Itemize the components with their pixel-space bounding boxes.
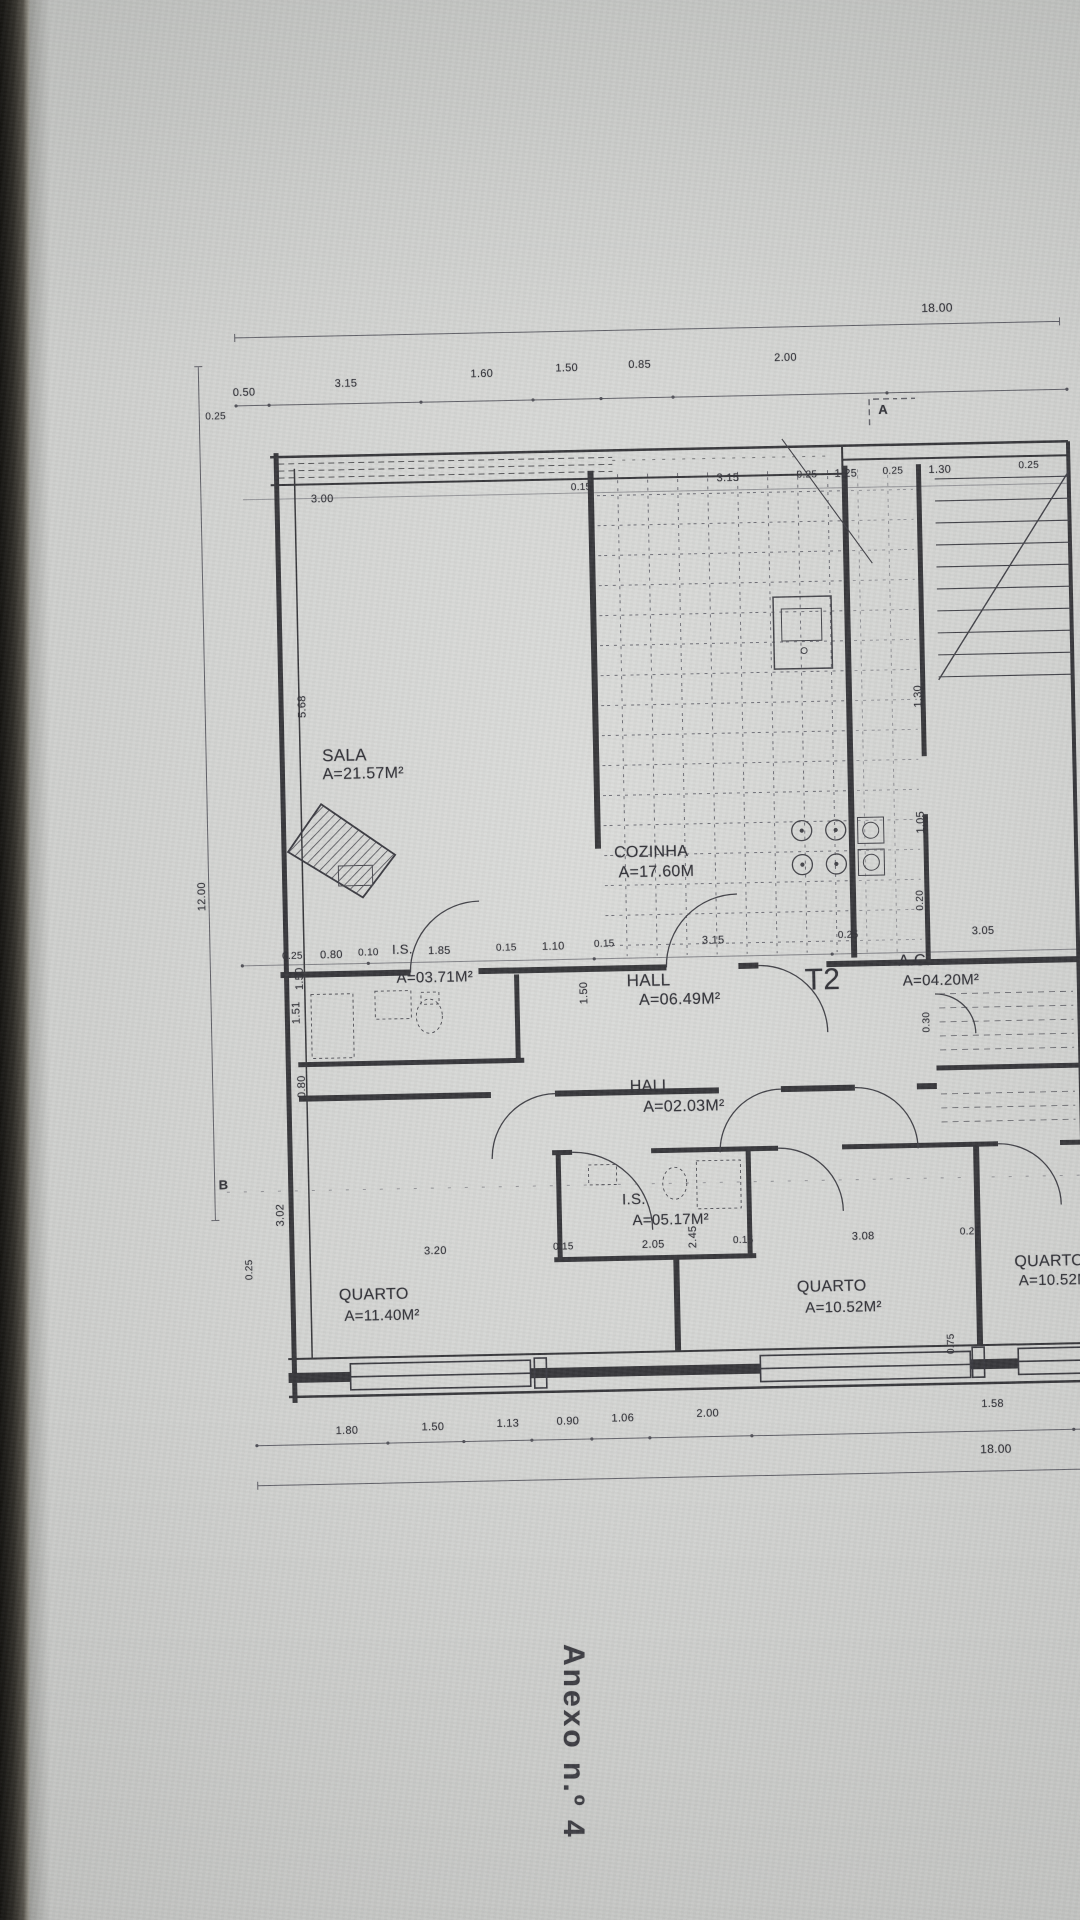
dim-bot-4: 0.90 — [556, 1416, 579, 1428]
dim-bot-5: 1.06 — [611, 1413, 634, 1425]
room-is1-name: I.S. — [392, 942, 413, 956]
room-is2-name: I.S. — [622, 1192, 646, 1208]
section-marker-b: B — [219, 1178, 229, 1192]
dim-bot-1: 1.80 — [336, 1426, 359, 1438]
room-quarto2-area: A=10.52M² — [805, 1299, 882, 1316]
dim-left-025: 0.25 — [245, 1259, 256, 1280]
dim-low-2: 0.15 — [553, 1242, 574, 1253]
dim-left-151: 1.51 — [291, 1001, 303, 1024]
dim-top-2: 3.15 — [335, 378, 358, 390]
photo-backing-surface — [0, 0, 30, 1920]
room-hall1-area: A=06.49M² — [639, 991, 721, 1009]
dim-upper-5: 1.25 — [834, 468, 857, 480]
room-quarto3-name: QUARTO — [1014, 1253, 1080, 1271]
room-sala-area: A=21.57M² — [322, 766, 404, 784]
dim-bot-3: 1.13 — [496, 1418, 519, 1430]
dim-right-075: 0.75 — [947, 1333, 958, 1354]
dim-bot-6: 2.00 — [696, 1408, 719, 1420]
dim-v-245: 2.45 — [688, 1225, 700, 1248]
photographed-floor-plan: { "annex": { "text": "Anexo n.º 4" }, "c… — [0, 0, 1080, 1920]
dim-right-020: 0.20 — [916, 890, 927, 911]
dim-bot-total: 18.00 — [980, 1443, 1012, 1456]
floor-plan: 18.000.503.151.601.500.852.00A0.253.000.… — [179, 291, 1080, 1524]
room-hall2-area: A=02.03M² — [643, 1098, 725, 1116]
dim-upper-4: 0.25 — [796, 470, 817, 481]
unit-type-t2: T2 — [804, 964, 840, 996]
section-marker-a: A — [878, 403, 888, 417]
room-cozinha-name: COZINHA — [614, 844, 688, 862]
dim-mid-8: 3.15 — [702, 935, 725, 947]
annex-title: Anexo n.º 4 — [556, 1644, 590, 1840]
dim-upper-1: 3.00 — [311, 494, 334, 506]
ac-floor-hatch — [939, 991, 1076, 1122]
dim-mid-2: 0.80 — [320, 950, 343, 962]
room-ac-name: A.C. — [898, 953, 931, 970]
dim-mid-6: 1.10 — [542, 941, 565, 953]
dim-right-130: 1.30 — [913, 685, 925, 708]
dim-top-4: 1.50 — [555, 363, 578, 375]
dim-upper-3: 3.15 — [717, 473, 740, 485]
room-is1-area: A=03.71M² — [396, 969, 473, 986]
dim-right-105: 1.05 — [916, 811, 928, 834]
dim-low-5: 3.08 — [852, 1231, 875, 1243]
dim-left-1200: 12.00 — [197, 882, 209, 911]
paper-edge-shadow — [28, 0, 54, 1920]
dim-v-030: 0.30 — [922, 1012, 933, 1033]
dim-low-6: 0.25 — [960, 1227, 981, 1238]
dim-mid-9: 0.25 — [838, 931, 859, 942]
dim-v-150: 1.50 — [579, 982, 591, 1005]
dim-top-6: 2.00 — [774, 353, 797, 365]
dim-mid-10: 3.05 — [972, 926, 995, 938]
dim-low-4: 0.15 — [733, 1236, 754, 1247]
room-quarto1-area: A=11.40M² — [344, 1307, 420, 1324]
dim-upper-6: 0.25 — [882, 467, 903, 478]
room-quarto3-area: A=10.52M² — [1019, 1272, 1080, 1289]
dim-left-568: 5.68 — [297, 695, 309, 718]
room-quarto1-name: QUARTO — [339, 1287, 409, 1305]
dim-bot-7: 1.58 — [981, 1399, 1004, 1411]
room-cozinha-area: A=17.60M — [618, 864, 694, 882]
room-quarto2-name: QUARTO — [797, 1278, 867, 1296]
dim-left-150: 1.50 — [295, 967, 307, 990]
dim-left-080: 0.80 — [297, 1075, 309, 1098]
dim-low-3: 2.05 — [642, 1239, 665, 1251]
dim-low-1: 3.20 — [424, 1246, 447, 1258]
dim-mid-4: 1.85 — [428, 946, 451, 958]
dim-mid-3: 0.10 — [358, 948, 379, 959]
service-floor-hatch — [850, 466, 922, 955]
dim-mid-5: 0.15 — [496, 943, 517, 954]
dim-top-1: 0.50 — [233, 388, 256, 400]
dim-left-302: 3.02 — [275, 1204, 287, 1227]
kitchen-floor-hatch — [596, 468, 850, 957]
dim-bot-2: 1.50 — [422, 1422, 445, 1434]
dim-top-3: 1.60 — [470, 369, 493, 381]
room-ac-area: A=04.20M² — [903, 972, 980, 989]
dim-upper-left: 0.25 — [205, 412, 226, 423]
dim-mid-7: 0.15 — [594, 939, 615, 950]
room-is2-area: A=05.17M² — [632, 1212, 709, 1229]
dim-upper-8: 0.25 — [1018, 461, 1039, 472]
dim-mid-1: 0.25 — [282, 952, 303, 963]
dim-top-total: 18.00 — [921, 302, 953, 315]
room-sala-name: SALA — [322, 746, 367, 765]
dim-top-5: 0.85 — [628, 360, 651, 372]
dim-upper-7: 1.30 — [928, 465, 951, 477]
room-hall1-name: HALL — [627, 971, 671, 990]
dim-upper-2: 0.15 — [571, 483, 592, 494]
room-hall2-name: HALL — [630, 1078, 672, 1096]
